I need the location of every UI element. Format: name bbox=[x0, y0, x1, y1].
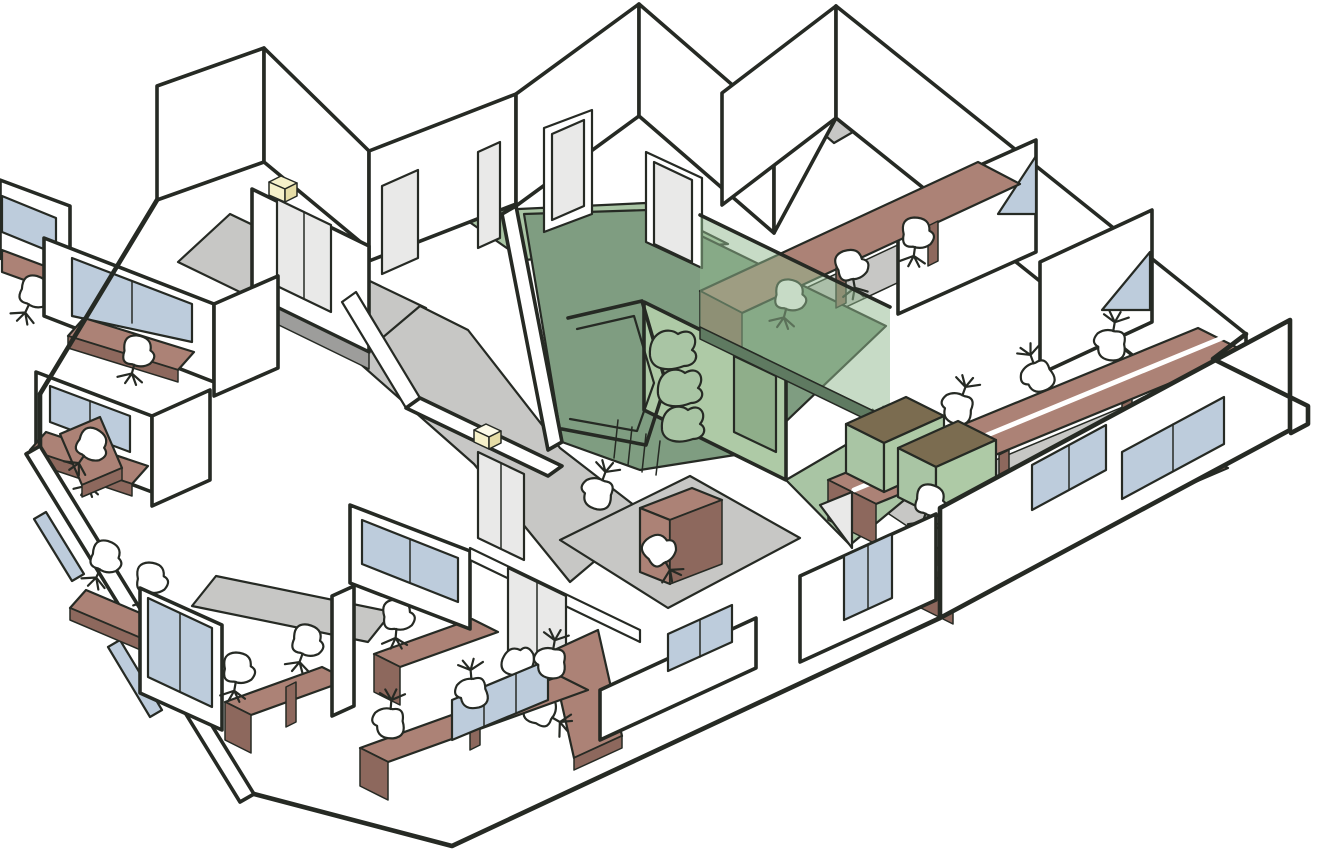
office-floorplan-illustration bbox=[0, 0, 1319, 853]
office-side-wall bbox=[214, 276, 278, 396]
door bbox=[478, 142, 500, 248]
door bbox=[382, 170, 418, 274]
partition-slab bbox=[332, 586, 354, 716]
top-left-room-left-wall bbox=[157, 48, 264, 200]
office-side-wall bbox=[152, 390, 210, 506]
floorplan-svg bbox=[0, 0, 1319, 853]
office-chair bbox=[371, 688, 407, 740]
door bbox=[552, 120, 584, 220]
door bbox=[654, 162, 692, 262]
